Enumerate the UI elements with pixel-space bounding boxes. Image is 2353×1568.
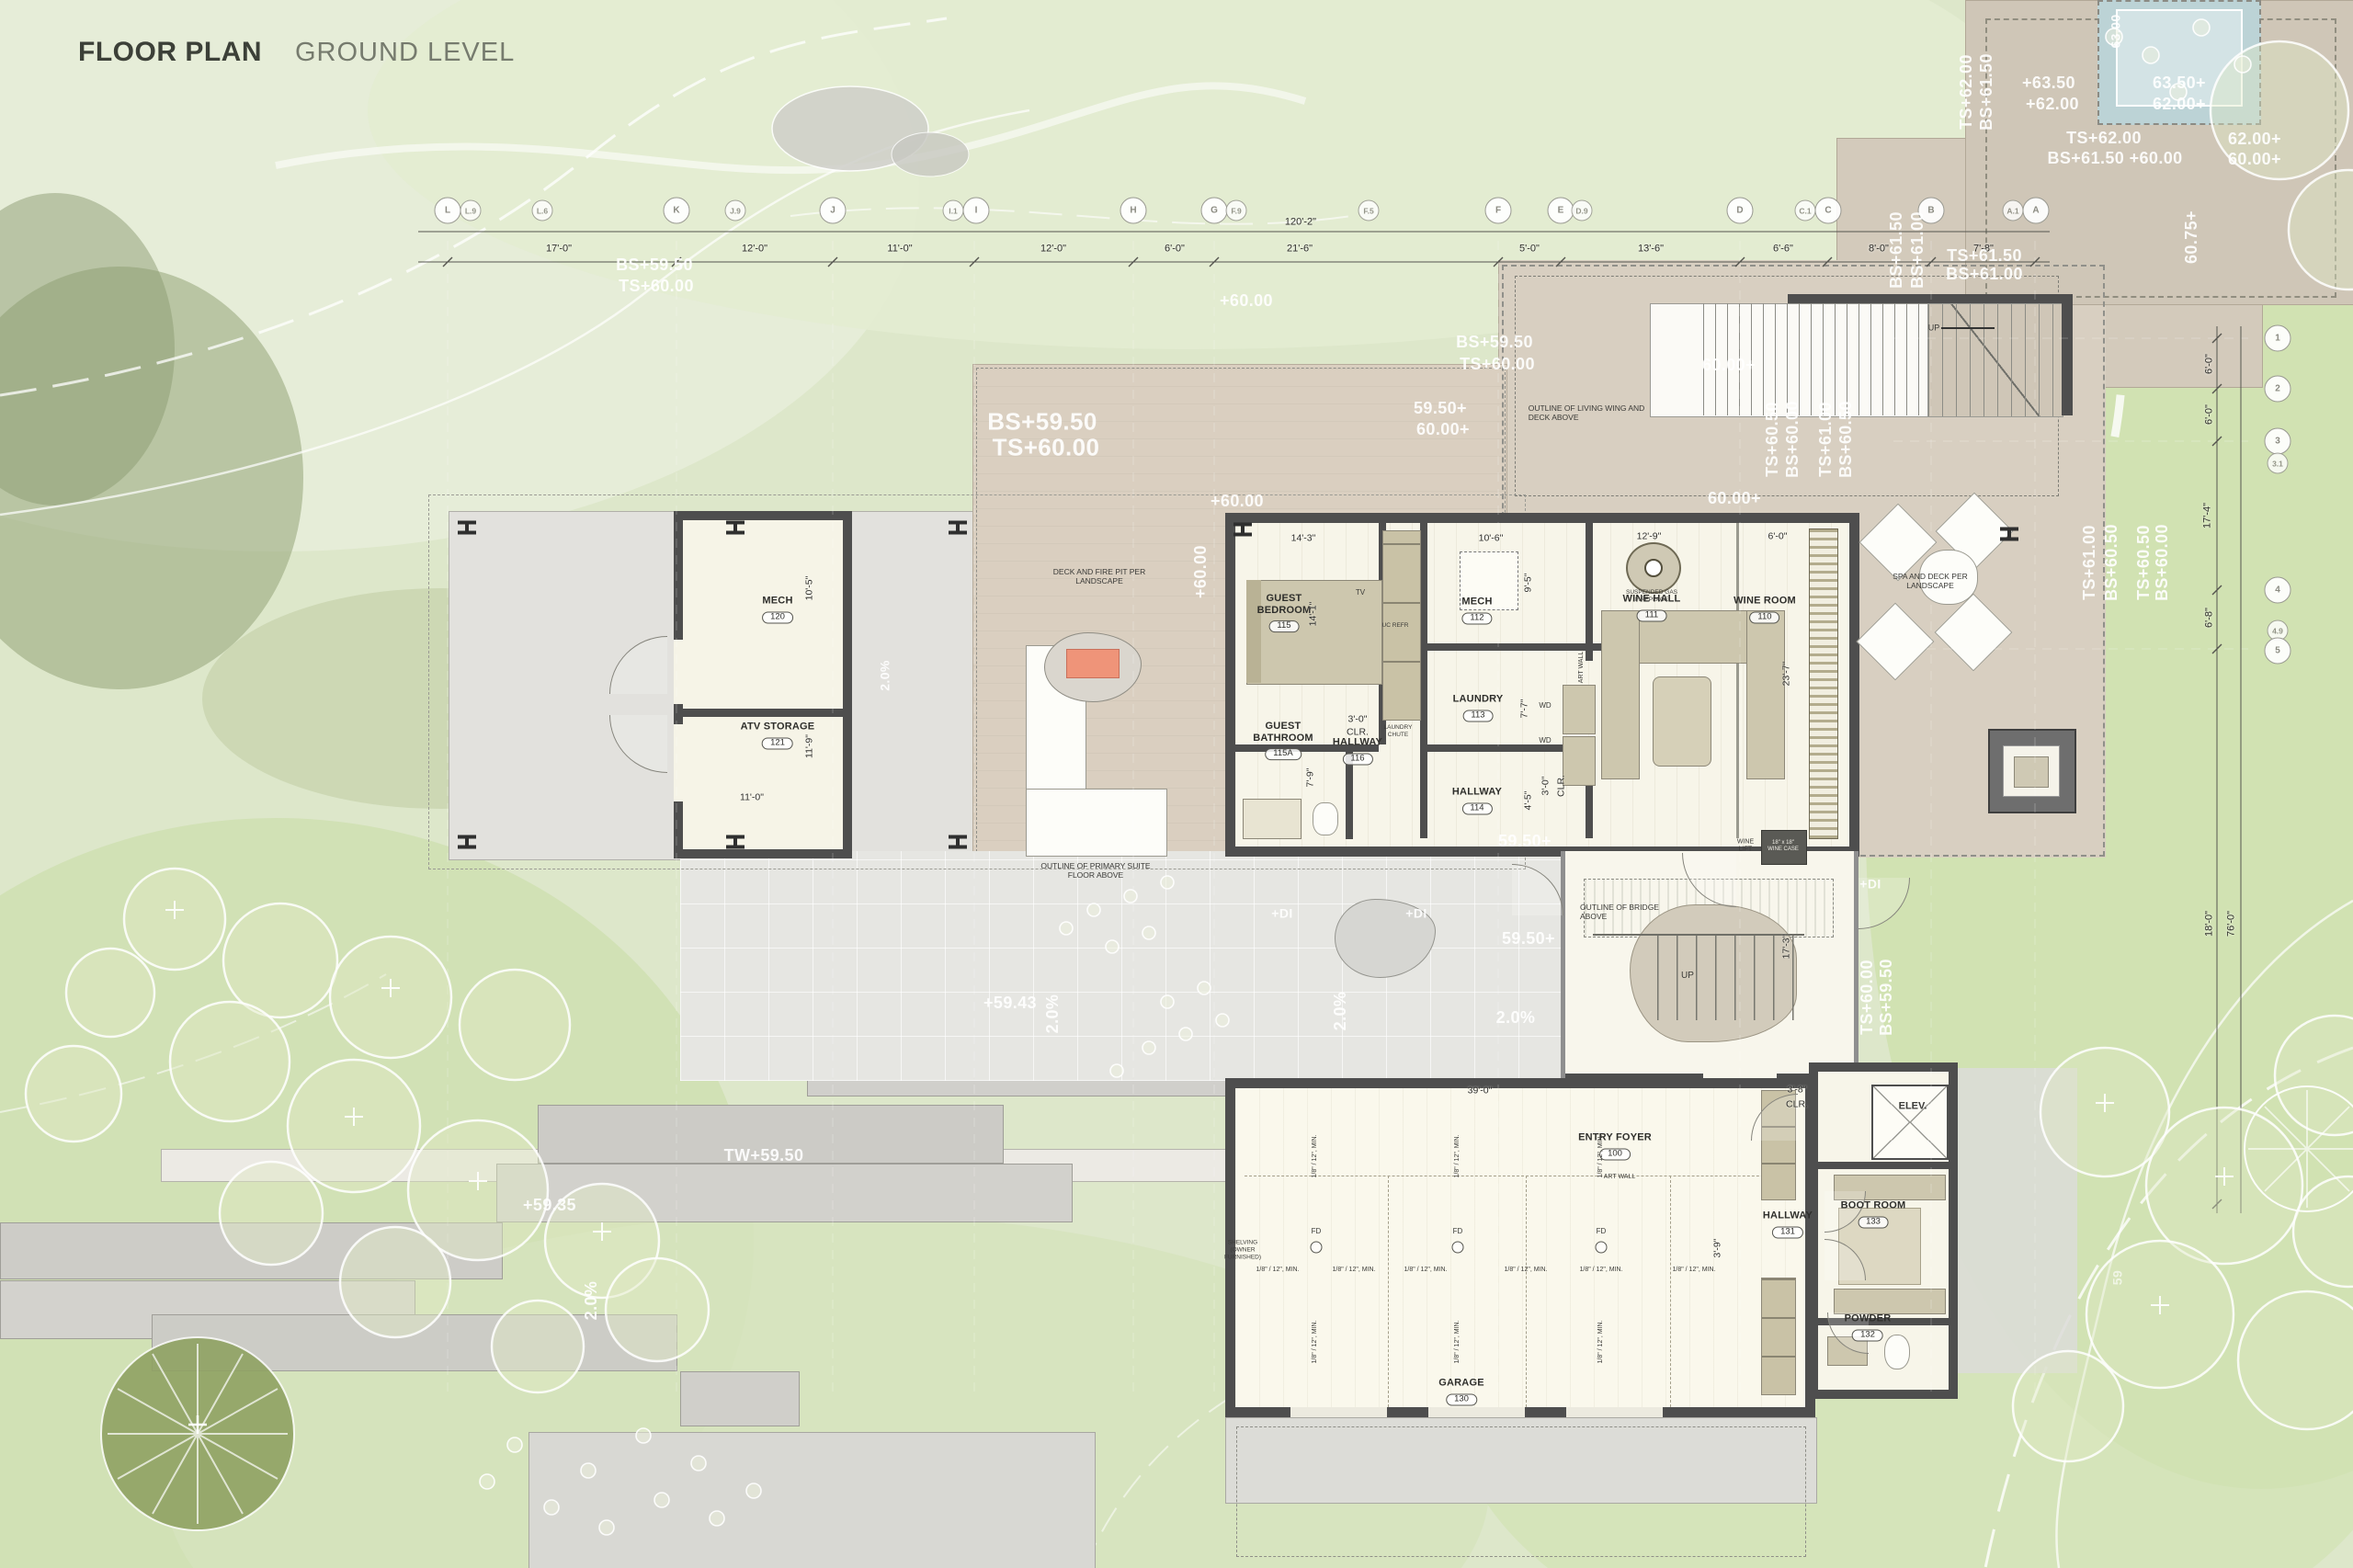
garage-door-gap	[1428, 1407, 1525, 1417]
dim-label: 7'-9"	[1305, 768, 1317, 788]
elevation-label: BS+59.50	[1456, 333, 1533, 353]
conifer-tree	[2245, 1086, 2353, 1211]
elevation-label: 63.00	[2109, 14, 2124, 48]
stair-wall	[2062, 294, 2073, 415]
room-name: HALLWAY	[1333, 736, 1382, 748]
grid-dim: 12'-0"	[742, 243, 767, 255]
dim-label: 3'-0"	[1540, 777, 1552, 796]
elevation-label: BS+61.50	[1887, 211, 1907, 289]
slope-label: 1/8" / 12", MIN.	[1312, 1135, 1319, 1178]
grid-dim: 21'-6"	[1287, 243, 1313, 255]
dim-label: 23'-7"	[1781, 662, 1793, 687]
laundry-chute-label: LAUNDRY CHUTE	[1384, 724, 1413, 739]
steel-column	[458, 835, 476, 849]
steel-column	[949, 835, 967, 849]
fireplace-flue	[1644, 559, 1663, 577]
glass-wall	[1736, 523, 1739, 838]
elevation-label: TS+60.50	[1763, 402, 1783, 477]
steel-column	[458, 521, 476, 535]
shelving-label: SHELVING (OWNER FURNISHED)	[1224, 1239, 1261, 1260]
steel-column	[2000, 528, 2018, 541]
elevation-label: BS+61.50 +60.00	[2047, 149, 2182, 169]
room-label-laundry: LAUNDRY113	[1453, 693, 1504, 722]
west-building	[674, 511, 852, 858]
elevation-label: +62.00	[2026, 95, 2079, 115]
dryer	[1563, 736, 1596, 786]
room-name: MECH	[762, 595, 793, 607]
room-number: 121	[762, 737, 793, 749]
room-name: WINE ROOM	[1733, 595, 1796, 607]
grid-bubble: L	[435, 198, 461, 224]
apron-outline	[1236, 1426, 1806, 1557]
dim-label: 14'-1"	[1308, 602, 1320, 627]
title-sub: GROUND LEVEL	[295, 38, 515, 68]
grid-dim: 8'-0"	[1869, 243, 1889, 255]
elevation-label: 60.75+	[2182, 210, 2202, 264]
elevation-label: 59.50+	[1498, 832, 1552, 852]
elevation-label: TS+60.00	[993, 433, 1100, 461]
room-label-garage: GARAGE130	[1438, 1377, 1483, 1405]
elevator-cab	[1871, 1085, 1949, 1160]
wine-lift-label: WINE LIFT	[1737, 839, 1754, 855]
deck-sofa	[1026, 789, 1167, 857]
grid-bubble: E	[1548, 198, 1574, 224]
elevation-label: +60.00	[1211, 492, 1264, 512]
grid-bubble: L.6	[532, 200, 553, 222]
floor-plan-canvas: FLOOR PLAN GROUND LEVEL L L.9 L.6 K J.9 …	[0, 0, 2353, 1568]
room-number: 133	[1858, 1216, 1889, 1228]
room-name: HALLWAY	[1452, 786, 1502, 798]
dim-label: 9'-5"	[1523, 574, 1535, 593]
elevation-label: TS+62.00	[2066, 129, 2142, 149]
grid-overall-dim: 76'-0"	[2225, 911, 2237, 937]
stone-step	[680, 1371, 800, 1426]
spot-elevation-label: +59.35	[523, 1196, 576, 1216]
room-name: BOOT ROOM	[1841, 1199, 1906, 1211]
grid-overall-dim: 120'-2"	[1285, 216, 1316, 228]
elevation-label: BS+59.50	[987, 407, 1097, 436]
room-name: MECH	[1461, 596, 1492, 608]
elevation-label: BS+60.00	[2153, 524, 2173, 601]
room-label-entry-foyer: ENTRY FOYER100	[1578, 1131, 1652, 1160]
elevation-label: TS+61.50	[1947, 246, 2022, 267]
grid-bubble: I	[963, 198, 990, 224]
up-label: UP	[1928, 324, 1940, 334]
steel-column	[949, 521, 967, 535]
grid-bubble: F.9	[1226, 200, 1247, 222]
elevation-label: +60.00	[1191, 545, 1211, 598]
room-label-powder: POWDER132	[1845, 1312, 1892, 1341]
stair-upper-run	[1927, 303, 2063, 417]
entry-walk	[1956, 1068, 2077, 1373]
dim-label: 11'-0"	[740, 792, 764, 804]
elevation-label: TS+62.00	[1957, 54, 1977, 130]
door-gap	[674, 724, 683, 801]
room-name: GARAGE	[1438, 1377, 1483, 1389]
wall	[1818, 1162, 1949, 1169]
fire-pit-flame	[1066, 649, 1120, 678]
stone-slab	[0, 1222, 503, 1279]
dim-label: 39'-0"	[1468, 1085, 1493, 1097]
grid-bubble: D.9	[1572, 200, 1593, 222]
room-label-mech-120: MECH120	[762, 595, 793, 623]
stone-step-row	[496, 1164, 1073, 1222]
annotation-spa-deck: SPA AND DECK PER LANDSCAPE	[1893, 572, 1968, 590]
elevation-label: BS+61.00	[1946, 265, 2023, 285]
room-number: 111	[1637, 609, 1666, 621]
room-label-hallway-114: HALLWAY114	[1452, 786, 1502, 814]
elevation-label: 62.00+	[2228, 130, 2281, 150]
room-name: ATV STORAGE	[741, 721, 815, 733]
art-wall-label: ART WALL	[1578, 652, 1586, 684]
grid-dim: 6'-0"	[2203, 354, 2215, 374]
toilet	[1313, 802, 1338, 835]
elevation-label: 59.50+	[1502, 929, 1555, 949]
elevation-label: 63.50+	[2153, 74, 2206, 94]
grid-dim: 6'-8"	[2203, 608, 2215, 628]
elevation-label: BS+61.50	[1977, 53, 1997, 131]
elevation-label: TS+61.00	[2080, 525, 2100, 600]
room-label-hallway-116: HALLWAY116	[1333, 736, 1382, 765]
bay-joint	[1388, 1176, 1389, 1407]
up-label: UP	[1681, 971, 1694, 982]
grid-dim: 6'-0"	[1165, 243, 1185, 255]
slope-label: 1/8" / 12", MIN.	[1312, 1321, 1319, 1364]
slope-percent-label: 2.0%	[1331, 992, 1351, 1031]
grid-bubble: F	[1485, 198, 1512, 224]
room-number: 132	[1852, 1329, 1883, 1341]
slope-label: 1/8" / 12", MIN.	[1597, 1321, 1605, 1364]
annotation-living-wing: OUTLINE OF LIVING WING AND DECK ABOVE	[1529, 403, 1645, 422]
grid-bubble: C.1	[1795, 200, 1816, 222]
room-number: 130	[1446, 1393, 1477, 1405]
elevation-label: TS+60.00	[619, 277, 694, 297]
garage-door-gap	[1290, 1407, 1387, 1417]
grid-bubble: C	[1815, 198, 1842, 224]
bay-joint	[1670, 1176, 1671, 1407]
room-label-mech-112: MECH112	[1461, 596, 1492, 624]
top-of-wall-label: TW+59.50	[724, 1146, 804, 1166]
elevation-label: BS+59.50	[616, 256, 693, 276]
elevation-label: 60.00+	[2228, 150, 2281, 170]
up-arrow-line	[1941, 327, 1995, 329]
dim-label: 3'-9"	[1712, 1239, 1724, 1258]
floor-drain	[1452, 1242, 1464, 1254]
elevation-label: TS+60.00	[1460, 355, 1535, 375]
stair-rail	[1593, 934, 1804, 936]
elevation-label: TS+60.50	[2134, 525, 2154, 600]
bath-tub	[1243, 799, 1302, 839]
tv-label: TV	[1356, 588, 1365, 597]
grid-bubble: I.1	[943, 200, 964, 222]
room-number: 120	[762, 611, 793, 623]
room-label-elevator: ELEV.	[1899, 1100, 1927, 1112]
dim-label: 4'-5"	[1523, 791, 1535, 811]
dim-label: 7'-7"	[1519, 699, 1531, 719]
room-number: 115A	[1265, 748, 1301, 760]
fireplace-hearth	[2014, 756, 2049, 788]
slope-label: 1/8" / 12", MIN.	[1580, 1267, 1623, 1274]
slope-percent-label: 2.0%	[1043, 994, 1063, 1034]
elevation-label: BS+59.50	[1877, 959, 1897, 1036]
annotation-bridge: OUTLINE OF BRIDGE ABOVE	[1580, 903, 1659, 921]
elevation-label: +60.00	[1220, 291, 1273, 312]
grid-bubble: 4	[2265, 577, 2291, 604]
wine-hall-ottoman	[1653, 676, 1711, 767]
wine-rack	[1809, 528, 1838, 839]
grid-dim: 12'-0"	[1040, 243, 1066, 255]
floor-drain	[1311, 1242, 1323, 1254]
wine-hall-sofa	[1601, 610, 1640, 779]
elevation-label: TS+61.00	[1816, 402, 1836, 477]
grid-bubble: L.9	[460, 200, 482, 222]
dim-label: 10'-5"	[804, 576, 816, 601]
grid-dim: 17'-4"	[2201, 503, 2213, 528]
driveway	[529, 1432, 1096, 1568]
drawing-title: FLOOR PLAN GROUND LEVEL	[78, 37, 515, 68]
bay-joint	[1526, 1176, 1527, 1407]
grid-bubble: G	[1201, 198, 1228, 224]
elevation-label: 60.00+	[1416, 420, 1470, 440]
grid-bubble: J.9	[725, 200, 746, 222]
slope-label: 1/8" / 12", MIN.	[1673, 1267, 1716, 1274]
title-main: FLOOR PLAN	[78, 37, 262, 68]
slope-percent-label: 2.0%	[582, 1281, 602, 1321]
elevation-label: BS+60.50	[1836, 401, 1857, 478]
grid-dim: 17'-0"	[546, 243, 572, 255]
elevation-label: 60.00+	[1708, 489, 1761, 509]
annotation-primary-suite: OUTLINE OF PRIMARY SUITE FLOOR ABOVE	[1040, 861, 1150, 880]
uc-refr-label: UC REFR	[1382, 622, 1409, 630]
garage-door-gap	[1566, 1407, 1663, 1417]
room-name: GUEST BEDROOM	[1257, 593, 1312, 616]
floor-drain-label: FD	[1312, 1227, 1322, 1236]
room-number: 131	[1772, 1226, 1803, 1238]
washer	[1563, 685, 1596, 734]
dim-label: CLR.	[1347, 727, 1369, 739]
wine-hall-sofa	[1746, 610, 1785, 779]
dim-label: 10'-6"	[1479, 533, 1504, 545]
grid-bubble: J	[820, 198, 847, 224]
washer-label: WD	[1539, 701, 1551, 710]
grid-dim: 13'-6"	[1638, 243, 1664, 255]
elevation-label: BS+60.50	[2102, 524, 2122, 601]
wall	[683, 709, 843, 717]
room-label-boot-room: BOOT ROOM133	[1841, 1199, 1906, 1228]
dim-label: 6'-0"	[1768, 531, 1788, 543]
annotation-deck-firepit: DECK AND FIRE PIT PER LANDSCAPE	[1053, 567, 1145, 585]
steel-column	[1233, 523, 1252, 537]
grid-dim: 11'-0"	[887, 243, 912, 255]
wall	[1420, 643, 1603, 651]
slope-label: 1/8" / 12", MIN.	[1454, 1321, 1461, 1364]
art-wall-label: ART WALL	[1604, 1174, 1636, 1181]
room-number: 112	[1461, 612, 1492, 624]
room-label-guest-bedroom: GUEST BEDROOM115	[1257, 593, 1312, 633]
stone-slab	[152, 1314, 677, 1371]
grid-bubble: H	[1120, 198, 1147, 224]
slope-percent-label: 2.0%	[1496, 1008, 1536, 1028]
dim-label: CLR.	[1556, 775, 1568, 797]
room-name: HALLWAY	[1763, 1210, 1813, 1221]
room-name: POWDER	[1845, 1312, 1892, 1324]
room-name: GUEST BATHROOM	[1253, 721, 1313, 744]
dim-label: 3'-0"	[1348, 714, 1368, 726]
elevation-label: 60.00+	[1702, 356, 1756, 376]
wine-case-label: 18" x 18" WINE CASE	[1768, 840, 1799, 853]
dryer-label: WD	[1539, 736, 1551, 745]
dim-label: 11'-9"	[804, 734, 816, 758]
floor-drain-label: FD	[1453, 1227, 1463, 1236]
drain-inlet-label: +DI	[1405, 906, 1427, 922]
elevation-label: TS+60.00	[1858, 960, 1878, 1035]
room-number: 116	[1342, 753, 1372, 765]
floor-drain-label: FD	[1597, 1227, 1607, 1236]
slope-percent-label: 2.0%	[878, 660, 893, 691]
steel-column	[726, 521, 745, 535]
room-name: LAUNDRY	[1453, 693, 1504, 705]
room-number: 113	[1462, 710, 1493, 722]
elevation-label: 62.00+	[2153, 95, 2206, 115]
room-number: 115	[1268, 620, 1299, 632]
floor-drain	[1596, 1242, 1608, 1254]
grid-bubble: 2	[2265, 376, 2291, 403]
room-number: 114	[1461, 802, 1492, 814]
grid-bubble: 5	[2265, 638, 2291, 665]
grid-bubble: F.5	[1358, 200, 1380, 222]
slope-label: 1/8" / 12", MIN.	[1454, 1135, 1461, 1178]
grid-dim: 6'-6"	[1773, 243, 1793, 255]
contour-number-label: 59	[2110, 1270, 2126, 1285]
dim-label: 12'-9"	[1637, 531, 1662, 543]
room-name: ENTRY FOYER	[1578, 1131, 1652, 1143]
drain-inlet-label: +DI	[1859, 877, 1881, 892]
elevation-label: +63.50	[2022, 74, 2075, 94]
wall	[1586, 523, 1593, 661]
slope-label: 1/8" / 12", MIN.	[1256, 1267, 1300, 1274]
elevation-label: BS+61.00	[1908, 211, 1928, 289]
grid-dim: 5'-0"	[1519, 243, 1540, 255]
dim-label: 14'-3"	[1291, 533, 1316, 545]
wall	[1420, 744, 1586, 752]
dim-label: 17'-3"	[1781, 935, 1793, 960]
grid-bubble: 3	[2265, 428, 2291, 455]
spot-elevation-label: +59.43	[983, 994, 1037, 1014]
room-label-guest-bathroom: GUEST BATHROOM115A	[1253, 721, 1313, 761]
drain-inlet-label: +DI	[1271, 906, 1292, 922]
steel-column	[726, 835, 745, 849]
elevation-label: 59.50+	[1414, 399, 1467, 419]
grid-dim: 18'-0"	[2203, 911, 2215, 937]
slope-label: 1/8" / 12", MIN.	[1505, 1267, 1548, 1274]
suspended-fireplace-label: SUSPENDED GAS FIREPLACE	[1626, 589, 1677, 604]
door-gap	[674, 640, 683, 704]
room-label-hallway-131: HALLWAY131	[1763, 1210, 1813, 1238]
rock-outcrop	[772, 86, 969, 176]
slope-label: 1/8" / 12", MIN.	[1597, 1135, 1605, 1178]
dim-label: CLR.	[1786, 1099, 1808, 1111]
grid-bubble: 1	[2265, 325, 2291, 352]
slope-label: 1/8" / 12", MIN.	[1404, 1267, 1448, 1274]
room-label-wine-room: WINE ROOM110	[1733, 595, 1796, 623]
slope-label: 1/8" / 12", MIN.	[1333, 1267, 1376, 1274]
grid-bubble: A	[2023, 198, 2050, 224]
garage-lockers	[1761, 1278, 1796, 1395]
outdoor-fireplace	[1988, 729, 2076, 813]
elevation-label: BS+60.00	[1783, 401, 1803, 478]
wall	[1420, 523, 1427, 838]
grid-dim: 6'-0"	[2203, 404, 2215, 425]
dim-label: 3'-8"	[1788, 1085, 1807, 1096]
grid-bubble: A.1	[2003, 200, 2024, 222]
room-number: 110	[1749, 611, 1779, 623]
boot-cabinets	[1834, 1289, 1946, 1314]
grid-bubble: 3.1	[2268, 453, 2289, 474]
grid-bubble: K	[664, 198, 690, 224]
grid-bubble: D	[1727, 198, 1754, 224]
stair-wall	[1788, 294, 2073, 303]
bay-joint	[1245, 1176, 1796, 1176]
